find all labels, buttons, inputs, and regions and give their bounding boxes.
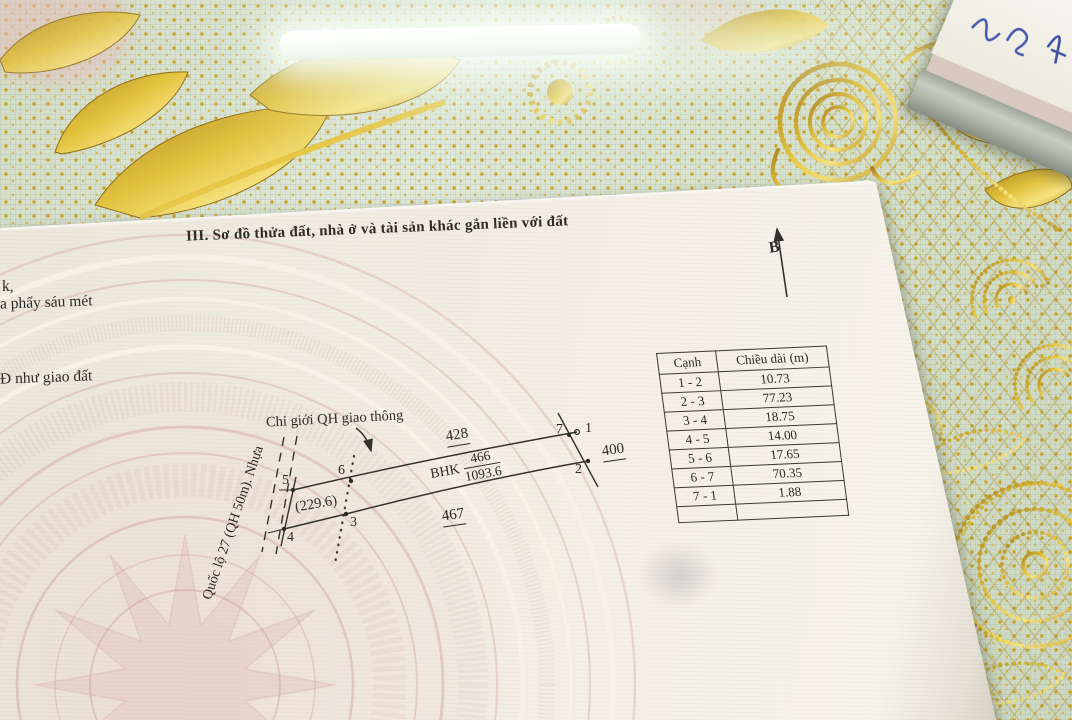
adjacent-parcel-top: 428 (445, 425, 470, 447)
vertex-label-4: 4 (287, 530, 294, 546)
certificate-page: III. Sơ đồ thửa đất, nhà ở và tài sản kh… (0, 0, 1072, 720)
adjacent-parcel-right: 400 (601, 441, 626, 463)
vertex-label-1: 1 (585, 421, 592, 437)
tick-at-vertex-4 (268, 529, 284, 533)
edge-cell (677, 504, 738, 522)
edge-cell: 3 - 4 (664, 410, 725, 431)
land-use-code: BHK (429, 462, 461, 483)
photo-scene: 20 (0, 0, 1072, 720)
vertex-label-5: 5 (282, 473, 289, 489)
edge-cell: 7 - 1 (674, 485, 735, 506)
edge-cell: 1 - 2 (659, 372, 720, 393)
adjacent-parcel-bottom: 467 (441, 506, 466, 528)
parcel-fraction: 466 1093.6 (461, 446, 503, 485)
col-header-edge: Cạnh (657, 351, 719, 374)
certificate-page-shadow: III. Sơ đồ thửa đất, nhà ở và tài sản kh… (0, 0, 1072, 720)
vertex-label-6: 6 (338, 463, 345, 479)
vertex-label-3: 3 (350, 515, 357, 531)
edge-cell: 5 - 6 (669, 447, 730, 468)
north-label: B (768, 238, 781, 257)
vertex-label-7: 7 (556, 422, 563, 438)
edge-cell: 2 - 3 (662, 391, 723, 412)
edge-cell: 4 - 5 (667, 429, 728, 450)
vertex-label-2: 2 (575, 462, 582, 478)
planning-label-arrow (356, 428, 371, 451)
parcel-diagram (0, 0, 1072, 720)
edge-cell: 6 - 7 (672, 466, 733, 487)
edge-length-table: Cạnh Chiều dài (m) 1 - 2 10.73 2 - 3 77.… (656, 346, 849, 524)
